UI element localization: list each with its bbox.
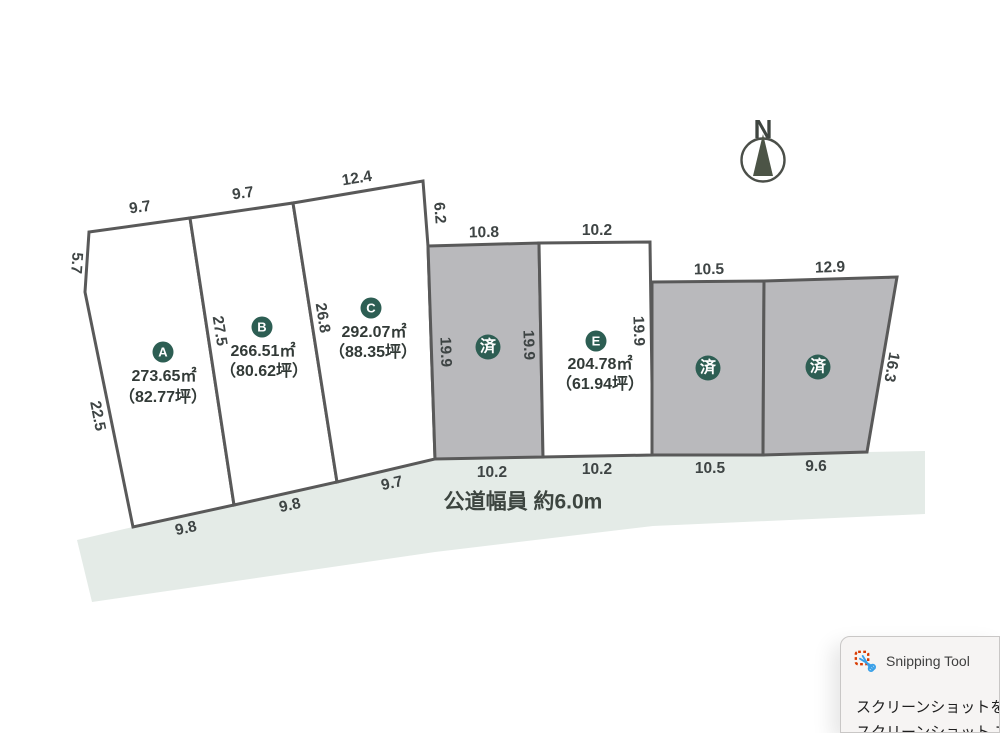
compass: N [742,114,785,182]
dim-g-top: 12.9 [815,259,846,277]
dim-f-bottom: 10.5 [695,460,726,477]
dim-e-right: 19.9 [629,316,647,347]
dim-d-top: 10.8 [469,224,500,242]
dim-e-bottom: 10.2 [582,461,612,478]
plot-e-badge-label: E [592,334,601,349]
plot-c-area: 292.07㎡ [342,322,407,341]
dim-d-right: 19.9 [519,330,537,361]
toast-title-row: Snipping Tool [854,650,970,672]
screenshot-page: 9.7 9.7 12.4 10.8 10.2 10.5 12.9 6.2 16.… [0,0,1000,733]
plot-a-tsubo: （82.77坪） [119,388,207,406]
toast-message: スクリーンショットをク スクリーンショット フ [856,695,999,733]
toast-message-line2: スクリーンショット フ [856,720,999,733]
plot-c-badge-label: C [366,301,376,316]
dim-d-left: 19.9 [436,337,454,368]
plot-a-badge-label: A [158,345,168,360]
plot-f-badge-label: 済 [700,358,717,377]
dim-c-top: 12.4 [341,168,374,190]
toast-message-line1: スクリーンショットをク [856,695,999,720]
dim-g-bottom: 9.6 [805,458,827,475]
plot-d-badge-label: 済 [480,337,497,356]
dim-e-top: 10.2 [582,222,612,239]
plot-b-badge: B [252,317,273,338]
plot-e-tsubo: （61.94坪） [556,375,644,393]
plot-b-badge-label: B [257,320,266,335]
plot-e-badge: E [586,331,607,352]
dim-d-bottom: 10.2 [477,464,507,481]
toast-app-name: Snipping Tool [886,653,970,669]
snipping-tool-toast[interactable]: Snipping Tool スクリーンショットをク スクリーンショット フ [840,636,1000,733]
plot-g-badge-label: 済 [810,357,827,376]
dim-f-top: 10.5 [694,261,725,279]
plot-b-tsubo: （80.62坪） [220,362,308,380]
dim-a-left-lower: 22.5 [86,399,109,432]
snipping-tool-icon [854,650,876,672]
land-plot-diagram: 9.7 9.7 12.4 10.8 10.2 10.5 12.9 6.2 16.… [0,0,1000,733]
dim-a-left-upper: 5.7 [67,252,85,275]
plot-d-badge: 済 [476,335,501,360]
plot-e-area: 204.78㎡ [568,354,633,373]
dim-c-right-upper: 6.2 [430,202,448,225]
dim-b-top: 9.7 [231,184,255,204]
road-label: 公道幅員 約6.0m [444,490,603,514]
plot-b-area: 266.51㎡ [231,341,296,360]
plot-c-tsubo: （88.35坪） [329,343,417,361]
dim-a-top: 9.7 [128,198,152,218]
plot-f-badge: 済 [696,356,721,381]
plot-g-badge: 済 [806,355,831,380]
plot-a-area: 273.65㎡ [132,366,197,385]
plot-c-badge: C [361,298,382,319]
plot-a-badge: A [153,342,174,363]
